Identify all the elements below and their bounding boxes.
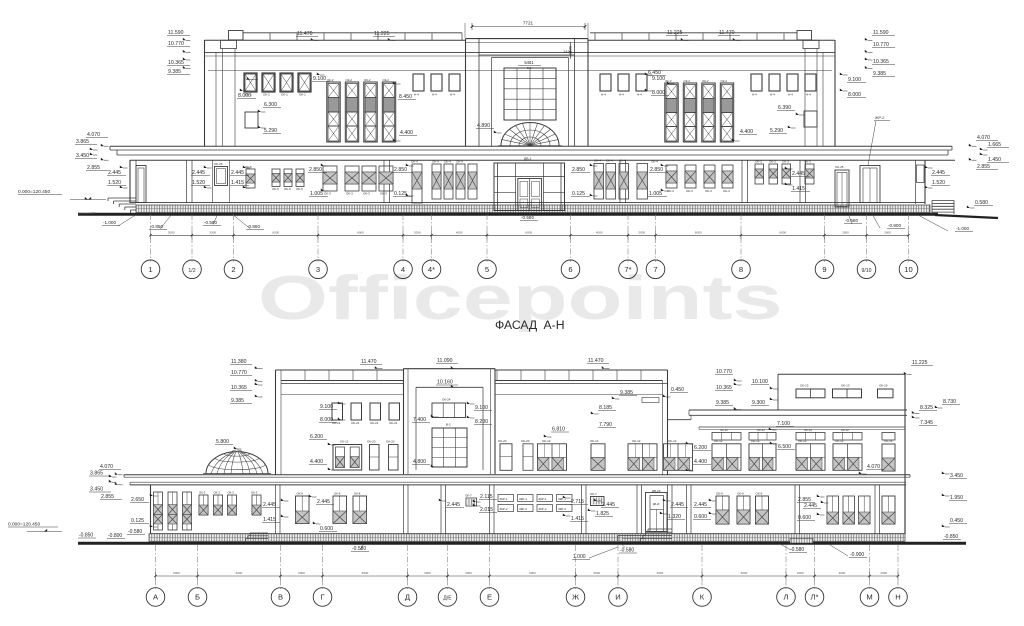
svg-text:10.365: 10.365: [231, 385, 247, 391]
svg-text:3.450: 3.450: [950, 473, 963, 479]
svg-text:2000: 2000: [797, 571, 804, 575]
svg-text:ОК-12: ОК-12: [835, 439, 844, 443]
svg-text:ЗКР-1: ЗКР-1: [539, 497, 547, 501]
svg-text:ОК-3: ОК-3: [346, 192, 353, 196]
svg-text:ОК-3: ОК-3: [755, 160, 762, 164]
svg-text:6.200: 6.200: [694, 445, 707, 451]
svg-text:0.125: 0.125: [131, 518, 144, 524]
svg-text:-0.900: -0.900: [888, 223, 901, 228]
svg-text:7.400: 7.400: [413, 417, 426, 423]
svg-text:2000: 2000: [880, 571, 887, 575]
svg-text:5.290: 5.290: [264, 128, 277, 134]
svg-text:4000: 4000: [596, 231, 603, 235]
svg-text:-0.860: -0.860: [247, 224, 260, 229]
svg-text:11.470: 11.470: [361, 359, 377, 365]
svg-text:ОК-8: ОК-8: [334, 491, 341, 495]
svg-text:Н-4: Н-4: [432, 93, 437, 97]
svg-text:4.400: 4.400: [310, 459, 323, 465]
svg-text:6.200: 6.200: [310, 434, 323, 440]
svg-text:8.325: 8.325: [920, 405, 933, 411]
svg-text:9.385: 9.385: [716, 400, 729, 406]
svg-text:ЖР-2: ЖР-2: [875, 116, 884, 120]
svg-text:2.445: 2.445: [192, 170, 205, 176]
svg-text:8.000: 8.000: [848, 92, 861, 98]
svg-text:-0.580: -0.580: [790, 547, 804, 553]
svg-text:7.790: 7.790: [599, 422, 612, 428]
svg-text:ОК-12: ОК-12: [340, 440, 349, 444]
svg-text:ОК-5: ОК-5: [296, 187, 303, 191]
svg-text:ОК-5: ОК-5: [272, 187, 279, 191]
svg-text:ОК-8: ОК-8: [354, 491, 361, 495]
svg-text:2.015: 2.015: [480, 507, 493, 513]
svg-text:4.400: 4.400: [400, 130, 413, 136]
svg-text:ОК-2: ОК-2: [684, 79, 691, 83]
svg-text:6000: 6000: [779, 231, 786, 235]
svg-text:ОК-12: ОК-12: [841, 428, 849, 432]
svg-text:5461: 5461: [524, 60, 534, 65]
svg-text:11.470: 11.470: [719, 30, 735, 36]
svg-text:0.125: 0.125: [394, 191, 407, 197]
svg-text:2.445: 2.445: [263, 502, 276, 508]
svg-text:ФАСАД: ФАСАД: [495, 318, 538, 332]
svg-text:ОК-4: ОК-4: [651, 160, 658, 164]
svg-text:4.070: 4.070: [867, 464, 880, 470]
svg-text:6000: 6000: [695, 231, 702, 235]
svg-text:ОК-12: ОК-12: [714, 439, 723, 443]
svg-text:3000: 3000: [465, 571, 472, 575]
svg-text:ОК-3: ОК-3: [769, 160, 776, 164]
svg-text:-0.850: -0.850: [79, 533, 93, 539]
svg-text:ОК-4: ОК-4: [456, 160, 463, 164]
svg-text:7*: 7*: [624, 265, 631, 274]
svg-text:6000: 6000: [741, 571, 748, 575]
svg-text:7.345: 7.345: [920, 420, 933, 426]
svg-text:6000: 6000: [272, 231, 279, 235]
svg-text:ЗКР-1: ЗКР-1: [500, 497, 508, 501]
svg-text:-0.580: -0.580: [204, 220, 217, 225]
svg-text:А-Н: А-Н: [544, 318, 565, 332]
svg-text:9.100: 9.100: [475, 405, 488, 411]
svg-text:2.445: 2.445: [671, 502, 684, 508]
svg-text:ОК-3: ОК-3: [199, 490, 206, 494]
svg-text:-1.000: -1.000: [103, 220, 116, 225]
svg-text:1: 1: [148, 265, 152, 274]
svg-text:11.225: 11.225: [374, 31, 390, 37]
svg-text:0.600: 0.600: [320, 526, 333, 532]
svg-text:ОК-4: ОК-4: [411, 160, 418, 164]
svg-text:9: 9: [822, 265, 826, 274]
svg-text:1.005: 1.005: [649, 191, 662, 197]
svg-text:4*: 4*: [428, 265, 435, 274]
svg-text:ОК-12: ОК-12: [757, 428, 765, 432]
svg-text:Н-4: Н-4: [806, 93, 811, 97]
svg-text:ОК-6: ОК-6: [737, 492, 744, 496]
svg-text:ОК-21: ОК-21: [351, 421, 360, 425]
svg-text:ОК-14: ОК-14: [590, 439, 599, 443]
svg-text:4.890: 4.890: [477, 123, 490, 129]
svg-text:11.225: 11.225: [667, 30, 683, 36]
svg-text:ОК-20: ОК-20: [498, 439, 507, 443]
svg-text:ОК-7: ОК-7: [465, 494, 472, 498]
svg-text:ОК-21: ОК-21: [389, 421, 398, 425]
svg-text:2.855: 2.855: [101, 494, 114, 500]
svg-text:0.600: 0.600: [694, 514, 707, 520]
svg-text:ОК-1: ОК-1: [263, 93, 270, 97]
svg-text:Н-4: Н-4: [601, 93, 606, 97]
svg-text:ОК-3: ОК-3: [723, 189, 730, 193]
svg-text:5.290: 5.290: [770, 128, 783, 134]
svg-text:Е: Е: [487, 593, 492, 602]
svg-text:ЗКР-1: ЗКР-1: [519, 497, 527, 501]
svg-text:1.520: 1.520: [108, 180, 121, 186]
svg-text:ОК-1: ОК-1: [299, 93, 306, 97]
svg-text:5: 5: [485, 265, 489, 274]
svg-text:ОК-21: ОК-21: [370, 421, 379, 425]
svg-text:ОК-3: ОК-3: [782, 160, 789, 164]
svg-text:5.800: 5.800: [216, 439, 229, 445]
svg-text:8.000: 8.000: [238, 93, 251, 99]
svg-text:Н-4: Н-4: [619, 93, 624, 97]
svg-text:9.100: 9.100: [320, 404, 333, 410]
svg-text:ОК-4: ОК-4: [444, 160, 451, 164]
svg-text:0.000=120.450: 0.000=120.450: [8, 522, 40, 528]
svg-text:3000: 3000: [209, 231, 216, 235]
svg-text:Г: Г: [320, 593, 324, 602]
svg-text:6.390: 6.390: [778, 105, 791, 111]
svg-text:ОК-1: ОК-1: [281, 93, 288, 97]
svg-text:11.590: 11.590: [168, 30, 184, 36]
svg-text:ОК-12: ОК-12: [632, 439, 641, 443]
svg-text:-0.850: -0.850: [150, 224, 163, 229]
svg-text:-0.580: -0.580: [620, 548, 634, 554]
svg-text:ОК-25: ОК-25: [835, 165, 844, 169]
svg-text:ОК-20: ОК-20: [521, 439, 530, 443]
svg-text:6.500: 6.500: [778, 444, 791, 450]
svg-text:2.445: 2.445: [804, 503, 817, 509]
svg-text:ОК-21: ОК-21: [332, 421, 341, 425]
svg-text:ОК-3: ОК-3: [363, 192, 370, 196]
svg-text:11.470: 11.470: [588, 358, 604, 364]
svg-text:2.445: 2.445: [231, 170, 244, 176]
svg-text:Ж: Ж: [572, 593, 579, 602]
svg-text:0.450: 0.450: [671, 387, 684, 393]
svg-text:4.800: 4.800: [413, 459, 426, 465]
svg-text:1.520: 1.520: [932, 180, 945, 186]
svg-text:4.070: 4.070: [100, 464, 113, 470]
svg-text:ОК-3: ОК-3: [214, 490, 221, 494]
svg-text:10.365: 10.365: [873, 59, 889, 65]
svg-text:10.365: 10.365: [168, 60, 184, 66]
svg-text:ОК-3: ОК-3: [686, 189, 693, 193]
svg-text:Н-4: Н-4: [770, 93, 775, 97]
svg-text:2.850: 2.850: [309, 167, 322, 173]
svg-text:ОК-6: ОК-6: [756, 492, 763, 496]
svg-text:2.855: 2.855: [87, 165, 100, 171]
svg-text:1.665: 1.665: [988, 142, 1001, 148]
svg-text:7: 7: [653, 265, 657, 274]
svg-text:-0.580: -0.580: [521, 215, 534, 220]
svg-text:ОК-3: ОК-3: [380, 192, 387, 196]
svg-text:10.770: 10.770: [168, 41, 184, 47]
svg-text:Н-4: Н-4: [450, 93, 455, 97]
svg-text:11.225: 11.225: [912, 360, 928, 366]
svg-text:4000: 4000: [839, 571, 846, 575]
svg-text:3000: 3000: [168, 231, 175, 235]
svg-text:-0.580: -0.580: [845, 218, 858, 223]
svg-text:7.100: 7.100: [777, 421, 790, 427]
svg-text:Н-4: Н-4: [414, 93, 419, 97]
svg-text:ОК-2: ОК-2: [702, 79, 709, 83]
svg-text:1.450: 1.450: [988, 157, 1001, 163]
svg-text:9.100: 9.100: [848, 77, 861, 83]
svg-text:2.445: 2.445: [317, 499, 330, 505]
svg-text:ОК-24: ОК-24: [442, 398, 451, 402]
svg-text:1/2: 1/2: [188, 268, 195, 274]
svg-text:ОК-5: ОК-5: [245, 165, 252, 169]
svg-text:ОК-19: ОК-19: [879, 384, 888, 388]
svg-text:2.445: 2.445: [447, 502, 460, 508]
svg-text:1.000: 1.000: [573, 554, 586, 560]
svg-text:ОК-2: ОК-2: [721, 79, 728, 83]
svg-text:Л*: Л*: [811, 593, 819, 602]
svg-text:8.730: 8.730: [943, 399, 956, 405]
svg-text:ОК-5: ОК-5: [284, 187, 291, 191]
svg-text:Н-4: Н-4: [752, 93, 757, 97]
svg-text:6000: 6000: [657, 571, 664, 575]
svg-text:2.445: 2.445: [108, 170, 121, 176]
svg-text:ОК-7: ОК-7: [590, 492, 597, 496]
svg-text:ОК-2: ОК-2: [346, 78, 353, 82]
svg-text:3.865: 3.865: [76, 139, 89, 145]
svg-text:4.400: 4.400: [694, 459, 707, 465]
svg-text:1.415: 1.415: [263, 517, 276, 523]
svg-text:11.380: 11.380: [231, 359, 247, 365]
svg-text:2.850: 2.850: [572, 167, 585, 173]
svg-text:0.450: 0.450: [950, 518, 963, 524]
svg-text:ОК-4: ОК-4: [606, 159, 613, 163]
svg-text:ЗКР-2: ЗКР-2: [539, 507, 547, 511]
svg-text:9/10: 9/10: [861, 268, 871, 274]
svg-text:10.365: 10.365: [716, 385, 732, 391]
svg-text:3.450: 3.450: [90, 487, 103, 493]
svg-text:Н-4: Н-4: [637, 93, 642, 97]
svg-text:2.850: 2.850: [650, 167, 663, 173]
svg-text:6000: 6000: [525, 231, 532, 235]
svg-text:В: В: [278, 593, 283, 602]
svg-text:ОК-3: ОК-3: [324, 192, 331, 196]
svg-text:10.770: 10.770: [873, 42, 889, 48]
svg-text:ОК-3: ОК-3: [804, 160, 811, 164]
svg-text:ОК-12: ОК-12: [804, 428, 812, 432]
svg-text:Д: Д: [405, 593, 410, 602]
svg-text:1.950: 1.950: [950, 495, 963, 501]
svg-text:1.415: 1.415: [231, 180, 244, 186]
svg-text:ДВ-1: ДВ-1: [524, 157, 532, 161]
svg-text:-0.850: -0.850: [944, 534, 958, 540]
svg-text:ДВ-29: ДВ-29: [653, 504, 660, 506]
svg-text:2.715: 2.715: [571, 499, 584, 505]
svg-text:3.450: 3.450: [76, 153, 89, 159]
svg-text:6.300: 6.300: [264, 102, 277, 108]
svg-text:ОК-13: ОК-13: [800, 384, 809, 388]
svg-text:8: 8: [739, 265, 743, 274]
svg-text:4.070: 4.070: [977, 135, 990, 141]
svg-text:6000: 6000: [362, 571, 369, 575]
svg-text:6.810: 6.810: [552, 427, 565, 433]
svg-text:6000: 6000: [298, 571, 305, 575]
svg-text:ОК-6: ОК-6: [716, 492, 723, 496]
svg-text:В-2: В-2: [527, 66, 532, 70]
svg-text:2.650: 2.650: [131, 497, 144, 503]
svg-text:1430: 1430: [563, 50, 571, 54]
svg-text:6000: 6000: [529, 571, 536, 575]
svg-text:3000: 3000: [593, 571, 600, 575]
svg-text:1.320: 1.320: [668, 514, 681, 520]
svg-text:3: 3: [316, 265, 320, 274]
svg-text:1.520: 1.520: [192, 180, 205, 186]
svg-text:2000: 2000: [638, 231, 645, 235]
svg-text:9.385: 9.385: [620, 390, 633, 396]
svg-text:8.000: 8.000: [320, 417, 333, 423]
svg-text:10: 10: [904, 265, 912, 274]
svg-text:К: К: [700, 593, 705, 602]
svg-text:ОК-8: ОК-8: [297, 491, 304, 495]
svg-text:4.070: 4.070: [87, 132, 100, 138]
svg-text:Д/Е: Д/Е: [443, 596, 452, 602]
svg-text:ОК-4: ОК-4: [594, 159, 601, 163]
svg-text:2.855: 2.855: [977, 164, 990, 170]
svg-text:6000: 6000: [236, 571, 243, 575]
svg-text:3000: 3000: [842, 231, 849, 235]
svg-text:10.770: 10.770: [231, 370, 247, 376]
svg-text:ОК-3: ОК-3: [705, 189, 712, 193]
svg-text:8.450: 8.450: [399, 94, 412, 100]
svg-text:Н-4: Н-4: [788, 93, 793, 97]
svg-text:4000: 4000: [456, 231, 463, 235]
svg-text:ОК-12: ОК-12: [542, 439, 551, 443]
svg-text:2.445: 2.445: [792, 171, 805, 177]
svg-text:8.000: 8.000: [652, 90, 665, 96]
svg-text:М: М: [866, 593, 872, 602]
svg-text:3.865: 3.865: [90, 471, 103, 477]
svg-text:ОК-12: ОК-12: [668, 439, 677, 443]
svg-text:11.470: 11.470: [297, 31, 313, 37]
svg-text:9.385: 9.385: [168, 69, 181, 75]
svg-text:2.445: 2.445: [694, 502, 707, 508]
svg-text:ОК-3: ОК-3: [251, 490, 258, 494]
svg-text:ОК-20: ОК-20: [367, 440, 376, 444]
svg-text:3000: 3000: [424, 571, 431, 575]
svg-text:2.445: 2.445: [602, 502, 615, 508]
svg-text:ОК-20: ОК-20: [386, 440, 395, 444]
svg-text:3000: 3000: [884, 231, 891, 235]
svg-text:2.115: 2.115: [480, 494, 493, 500]
svg-text:9.100: 9.100: [652, 76, 665, 82]
svg-text:ЗКР-2: ЗКР-2: [500, 507, 508, 511]
svg-text:11.090: 11.090: [437, 358, 453, 364]
svg-text:9.300: 9.300: [752, 400, 765, 406]
svg-text:ОК-12: ОК-12: [798, 439, 807, 443]
svg-text:4.400: 4.400: [740, 129, 753, 135]
svg-text:ОК-12: ОК-12: [751, 439, 760, 443]
svg-text:1.415: 1.415: [571, 516, 584, 522]
svg-text:6000: 6000: [357, 231, 364, 235]
svg-text:Н: Н: [895, 593, 900, 602]
svg-text:И: И: [615, 593, 620, 602]
svg-text:7721: 7721: [523, 21, 534, 26]
svg-text:0.125: 0.125: [572, 191, 585, 197]
svg-text:8.200: 8.200: [475, 419, 488, 425]
svg-text:6000: 6000: [173, 571, 180, 575]
svg-text:Б: Б: [195, 593, 200, 602]
svg-text:2.850: 2.850: [394, 167, 407, 173]
svg-text:0.600: 0.600: [798, 515, 811, 521]
svg-text:1.825: 1.825: [596, 511, 609, 517]
svg-text:6: 6: [568, 265, 572, 274]
svg-text:ОК-4: ОК-4: [619, 159, 626, 163]
svg-text:9.385: 9.385: [873, 71, 886, 77]
svg-text:-0.900: -0.900: [850, 552, 864, 558]
svg-text:-0.800: -0.800: [108, 533, 122, 539]
svg-text:-0.580: -0.580: [352, 546, 366, 552]
svg-text:ОК-3: ОК-3: [228, 490, 235, 494]
svg-text:1.415: 1.415: [792, 186, 805, 192]
svg-text:11.590: 11.590: [873, 30, 889, 36]
svg-text:ЗКР-2: ЗКР-2: [558, 507, 566, 511]
svg-text:2000: 2000: [414, 231, 421, 235]
svg-text:ОК-2: ОК-2: [383, 78, 390, 82]
svg-text:В-2: В-2: [446, 423, 451, 427]
svg-text:Л: Л: [784, 593, 789, 602]
svg-text:10.770: 10.770: [716, 369, 732, 375]
svg-text:0.580: 0.580: [975, 200, 988, 206]
svg-text:ОК-13: ОК-13: [841, 384, 850, 388]
svg-text:1.005: 1.005: [310, 191, 323, 197]
svg-text:2: 2: [231, 265, 235, 274]
svg-text:ОК-4: ОК-4: [432, 160, 439, 164]
svg-text:ОК-12: ОК-12: [720, 428, 728, 432]
svg-text:ОК-25: ОК-25: [214, 162, 223, 166]
svg-text:0.000=120.450: 0.000=120.450: [18, 189, 50, 195]
svg-text:9.385: 9.385: [231, 398, 244, 404]
svg-text:2.445: 2.445: [932, 170, 945, 176]
svg-text:8.185: 8.185: [599, 405, 612, 411]
svg-text:-1.000: -1.000: [956, 226, 969, 231]
svg-text:ОК-2: ОК-2: [364, 78, 371, 82]
svg-text:10.100: 10.100: [752, 379, 768, 385]
svg-text:4: 4: [401, 265, 405, 274]
svg-text:ЗКР-2: ЗКР-2: [519, 507, 527, 511]
svg-text:9.100: 9.100: [313, 76, 326, 82]
svg-text:10.160: 10.160: [437, 380, 453, 386]
svg-text:-0.580: -0.580: [128, 529, 142, 535]
svg-text:ОК-2: ОК-2: [665, 79, 672, 83]
